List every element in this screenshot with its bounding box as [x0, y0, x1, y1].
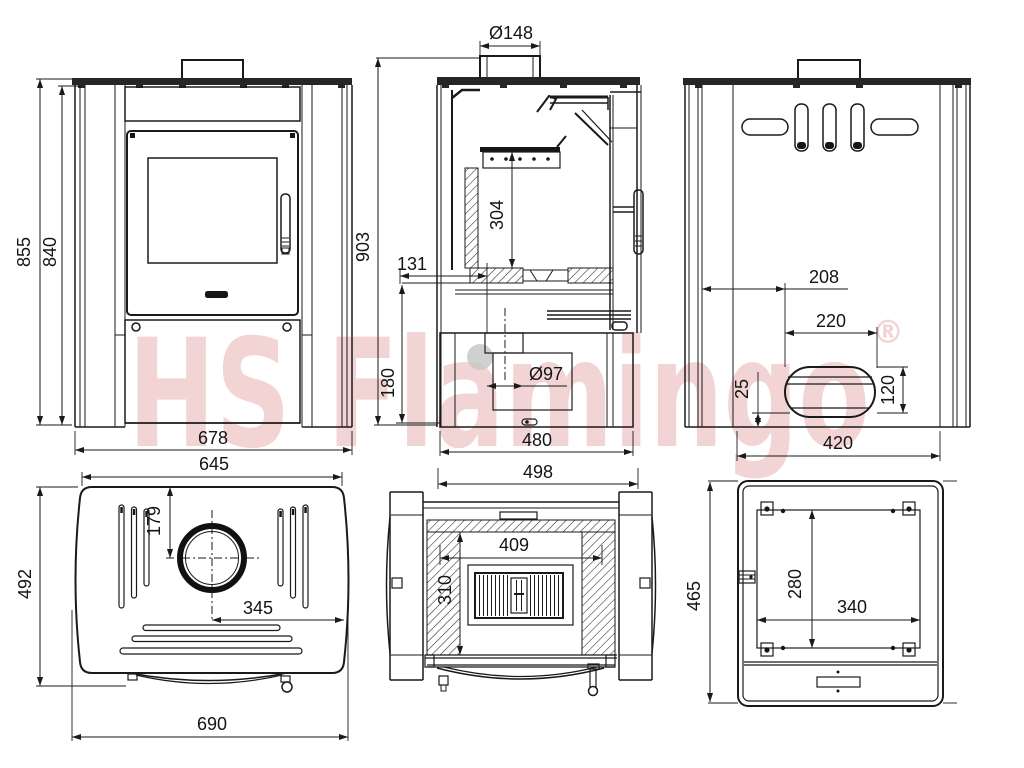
- flue-stub-rear: [798, 60, 860, 79]
- dim-690: 690: [197, 714, 227, 734]
- door-hinge-right: [290, 133, 295, 138]
- front-frame-section: [425, 655, 617, 696]
- baffle-plate: [480, 147, 560, 152]
- dim-25: 25: [732, 379, 752, 399]
- dim-409: 409: [499, 535, 529, 555]
- door-handle: [281, 194, 290, 254]
- drawer-handle: [817, 677, 860, 687]
- top-section-view: 409 310: [387, 492, 656, 696]
- dim-310: 310: [435, 575, 455, 605]
- foot-left: [128, 674, 137, 680]
- firebox-floor: [455, 268, 613, 294]
- firebrick-right: [582, 532, 615, 655]
- firebrick-wall: [465, 168, 478, 268]
- dim-120: 120: [878, 375, 898, 405]
- drawer-bottom: [744, 662, 937, 693]
- dim-220: 220: [816, 311, 846, 331]
- smoke-chamber-internals: [452, 90, 612, 268]
- dim-903: 903: [353, 232, 373, 262]
- dim-498: 498: [523, 462, 553, 482]
- top-view: 645 179 345 492 690: [15, 454, 349, 741]
- bottom-outline-inner: [743, 486, 938, 701]
- grate: [475, 573, 563, 618]
- bottom-view: 465 280 340: [684, 481, 957, 706]
- side-panel-left: [387, 492, 424, 680]
- dim-465: 465: [684, 581, 704, 611]
- brand-logo: [205, 291, 228, 298]
- dim-280: 280: [785, 569, 805, 599]
- foot-right: [281, 676, 290, 682]
- hinge-foot: [439, 676, 448, 685]
- handle-pin: [589, 687, 598, 696]
- dim-131: 131: [397, 254, 427, 274]
- dim-208: 208: [809, 267, 839, 287]
- base-opening: [757, 510, 920, 648]
- dim-855: 855: [14, 237, 34, 267]
- dim-645: 645: [199, 454, 229, 474]
- dim-345: 345: [243, 598, 273, 618]
- technical-drawing-sheet: HS Flamingo ®: [0, 0, 1024, 768]
- flue-stub: [182, 60, 243, 79]
- top-plate-section: [437, 77, 640, 85]
- top-plate: [72, 78, 352, 85]
- top-dimensions: 645 179 345 492 690: [15, 454, 348, 741]
- dim-179: 179: [144, 506, 164, 536]
- top-plate-rear: [683, 78, 971, 85]
- bottom-dimensions: 465 280 340: [684, 482, 920, 702]
- door-arc: [437, 668, 604, 679]
- watermark-gray-dot: [467, 344, 493, 370]
- dim-304: 304: [487, 200, 507, 230]
- door-hinge-left: [130, 133, 135, 138]
- dim-180: 180: [378, 368, 398, 398]
- handle-section: [613, 190, 643, 254]
- door-glass: [148, 158, 277, 263]
- side-panel-right: [619, 492, 656, 680]
- vent-slots: [742, 104, 918, 151]
- dim-flue-diameter: Ø148: [489, 23, 533, 43]
- dim-840: 840: [40, 237, 60, 267]
- caster: [282, 682, 292, 692]
- stove-dimension-drawing: HS Flamingo ®: [0, 0, 1024, 768]
- flue-collar: [480, 56, 540, 78]
- dim-492: 492: [15, 569, 35, 599]
- dim-inlet-diameter: Ø97: [529, 364, 563, 384]
- dim-678: 678: [198, 428, 228, 448]
- upper-panel: [125, 87, 300, 121]
- dim-340: 340: [837, 597, 867, 617]
- dim-420: 420: [823, 433, 853, 453]
- front-curve-inner: [136, 675, 282, 684]
- side-latch: [739, 571, 755, 583]
- dim-480: 480: [522, 430, 552, 450]
